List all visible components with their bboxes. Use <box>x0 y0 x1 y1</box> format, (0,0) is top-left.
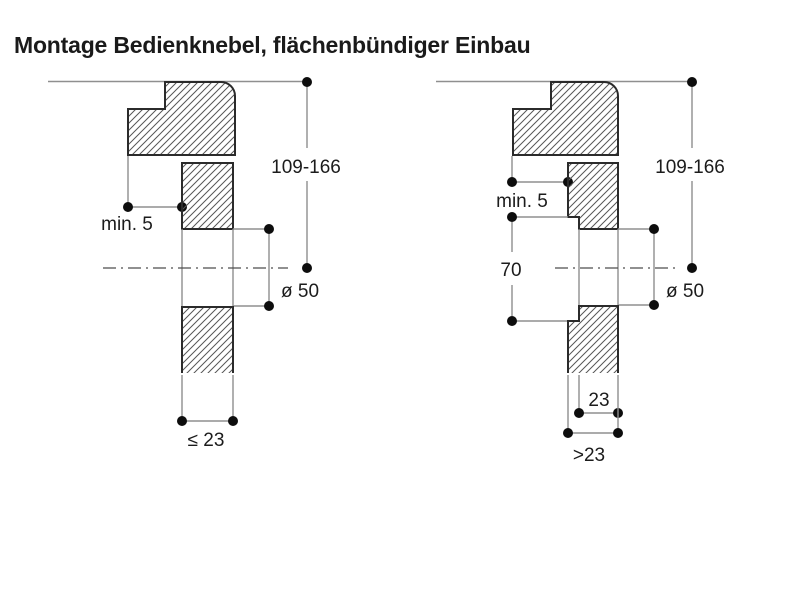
dim-label-cutout-width-right: 23 <box>588 390 609 411</box>
dim-label-min-overlap-left: min. 5 <box>101 214 153 235</box>
panel-cross-section-left <box>128 82 235 155</box>
dim-cutout-width-right: 23 <box>574 375 623 418</box>
dim-label-min-overlap-right: min. 5 <box>496 191 548 212</box>
dim-height-range-right: 109-166 <box>655 77 725 273</box>
knob-collar-upper-left <box>182 163 233 229</box>
panel-cross-section-right <box>513 82 618 155</box>
dim-recess-height-right: 70 <box>500 212 568 326</box>
dim-label-knob-diameter-right: ø 50 <box>666 281 704 302</box>
dim-height-range-left: 109-166 <box>271 77 341 273</box>
dim-label-recess-height-right: 70 <box>500 260 521 281</box>
figure-flush-thin-panel: 109-166 min. 5 <box>48 77 341 451</box>
dim-panel-thickness-right: >23 <box>563 375 623 466</box>
dim-label-knob-diameter-left: ø 50 <box>281 281 319 302</box>
dim-panel-thickness-left: ≤ 23 <box>177 375 238 451</box>
knob-collar-lower-left <box>182 307 233 373</box>
knob-collar-lower-right <box>568 306 618 373</box>
figure-flush-thick-panel: 109-166 min. 5 70 <box>436 77 725 466</box>
dim-min-overlap-right: min. 5 <box>496 156 573 212</box>
dim-label-height-range-left: 109-166 <box>271 157 341 178</box>
dim-label-panel-thickness-right: >23 <box>573 445 605 466</box>
knob-collar-upper-right <box>568 163 618 229</box>
dim-label-panel-thickness-left: ≤ 23 <box>188 430 225 451</box>
dim-min-overlap-left: min. 5 <box>101 156 187 235</box>
installation-diagram: 109-166 min. 5 <box>0 0 800 615</box>
dim-label-height-range-right: 109-166 <box>655 157 725 178</box>
installation-diagram-page: Montage Bedienknebel, flächenbündiger Ei… <box>0 0 800 615</box>
